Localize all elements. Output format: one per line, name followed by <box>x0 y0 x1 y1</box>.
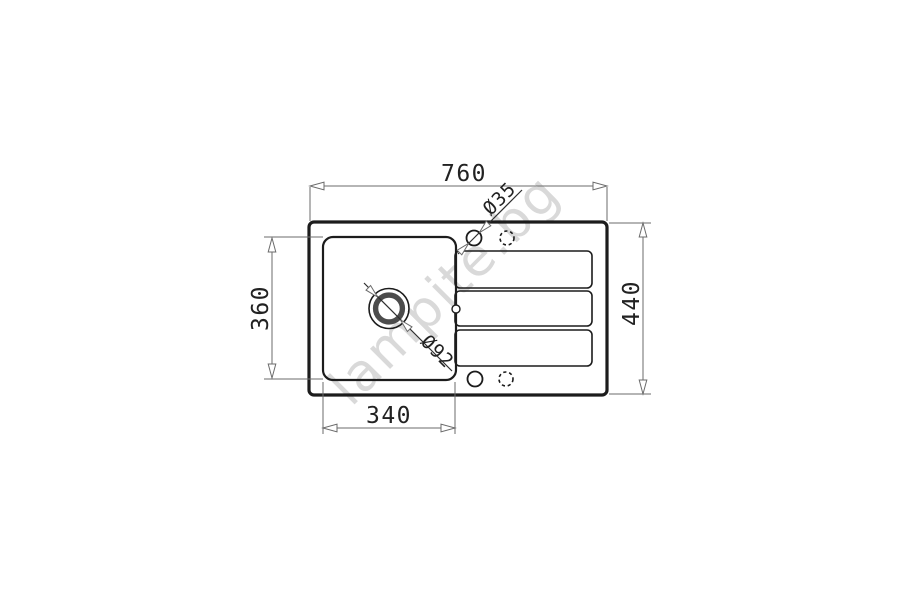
drainboard-groove-3 <box>455 330 592 366</box>
arrow-340-right <box>441 424 455 432</box>
overflow-hole <box>452 305 460 313</box>
dim-overall-width-label: 760 <box>441 161 487 187</box>
tap-hole-dashed-bottom <box>499 372 513 386</box>
arrow-340-left <box>323 424 337 432</box>
tap-hole-solid-bottom <box>468 372 483 387</box>
dim-bowl-depth-label: 360 <box>248 285 274 331</box>
dim-overall-depth-label: 440 <box>619 280 645 326</box>
sink-technical-drawing-page: lampite.bg <box>0 0 900 600</box>
sink-technical-drawing: lampite.bg <box>0 0 900 600</box>
dimension-overall-depth: 440 <box>609 223 651 394</box>
arrow-760-right <box>593 182 607 190</box>
arrow-440-top <box>639 223 647 237</box>
arrow-360-bottom <box>268 364 276 378</box>
arrow-360-top <box>268 238 276 252</box>
dim-bowl-width-label: 340 <box>366 403 412 429</box>
arrow-760-left <box>310 182 324 190</box>
dimension-bowl-depth: 360 <box>248 237 323 379</box>
arrow-440-bottom <box>639 380 647 394</box>
